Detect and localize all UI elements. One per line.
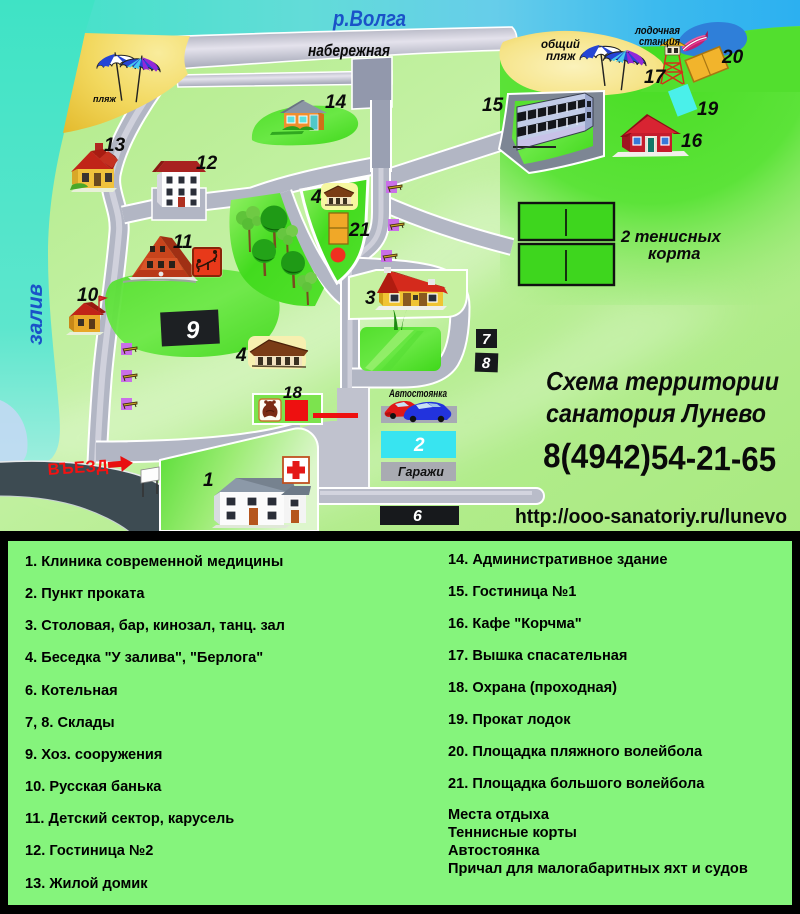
svg-text:1: 1: [203, 470, 214, 491]
svg-text:станция: станция: [639, 36, 680, 48]
svg-text:Схема территории: Схема территории: [546, 366, 779, 396]
svg-text:4: 4: [310, 187, 322, 208]
svg-text:Автостоянка: Автостоянка: [388, 388, 447, 400]
svg-text:6: 6: [413, 508, 422, 525]
svg-text:набережная: набережная: [308, 41, 390, 60]
svg-text:Гаражи: Гаражи: [398, 465, 444, 479]
svg-text:р.Волга: р.Волга: [332, 6, 406, 31]
svg-text:10: 10: [77, 285, 99, 306]
svg-text:http://ooo-sanatoriy.ru/lunevo: http://ooo-sanatoriy.ru/lunevo: [515, 505, 787, 528]
svg-text:20: 20: [721, 47, 744, 68]
svg-text:залив: залив: [24, 283, 47, 345]
svg-text:пляж: пляж: [93, 94, 117, 105]
svg-text:17: 17: [644, 67, 667, 88]
svg-text:8: 8: [482, 355, 492, 372]
svg-text:корта: корта: [648, 245, 700, 263]
svg-text:пляж: пляж: [546, 51, 576, 63]
svg-text:общий: общий: [541, 39, 580, 51]
svg-text:3: 3: [365, 288, 376, 309]
svg-text:18: 18: [283, 383, 302, 402]
svg-text:8(4942)54-21-65: 8(4942)54-21-65: [543, 437, 777, 479]
svg-text:11: 11: [173, 232, 193, 253]
svg-text:9: 9: [185, 316, 200, 344]
svg-text:12: 12: [196, 153, 218, 174]
svg-text:2 тенисных: 2 тенисных: [620, 228, 722, 246]
svg-text:4: 4: [235, 345, 247, 366]
svg-text:16: 16: [681, 131, 703, 152]
svg-text:14: 14: [325, 92, 347, 113]
svg-text:2: 2: [413, 435, 425, 456]
svg-text:19: 19: [697, 99, 719, 120]
svg-text:15: 15: [482, 95, 504, 116]
svg-text:7: 7: [482, 331, 491, 348]
svg-text:21: 21: [348, 220, 370, 241]
svg-text:санатория Лунево: санатория Лунево: [546, 398, 766, 428]
svg-text:13: 13: [104, 135, 126, 156]
